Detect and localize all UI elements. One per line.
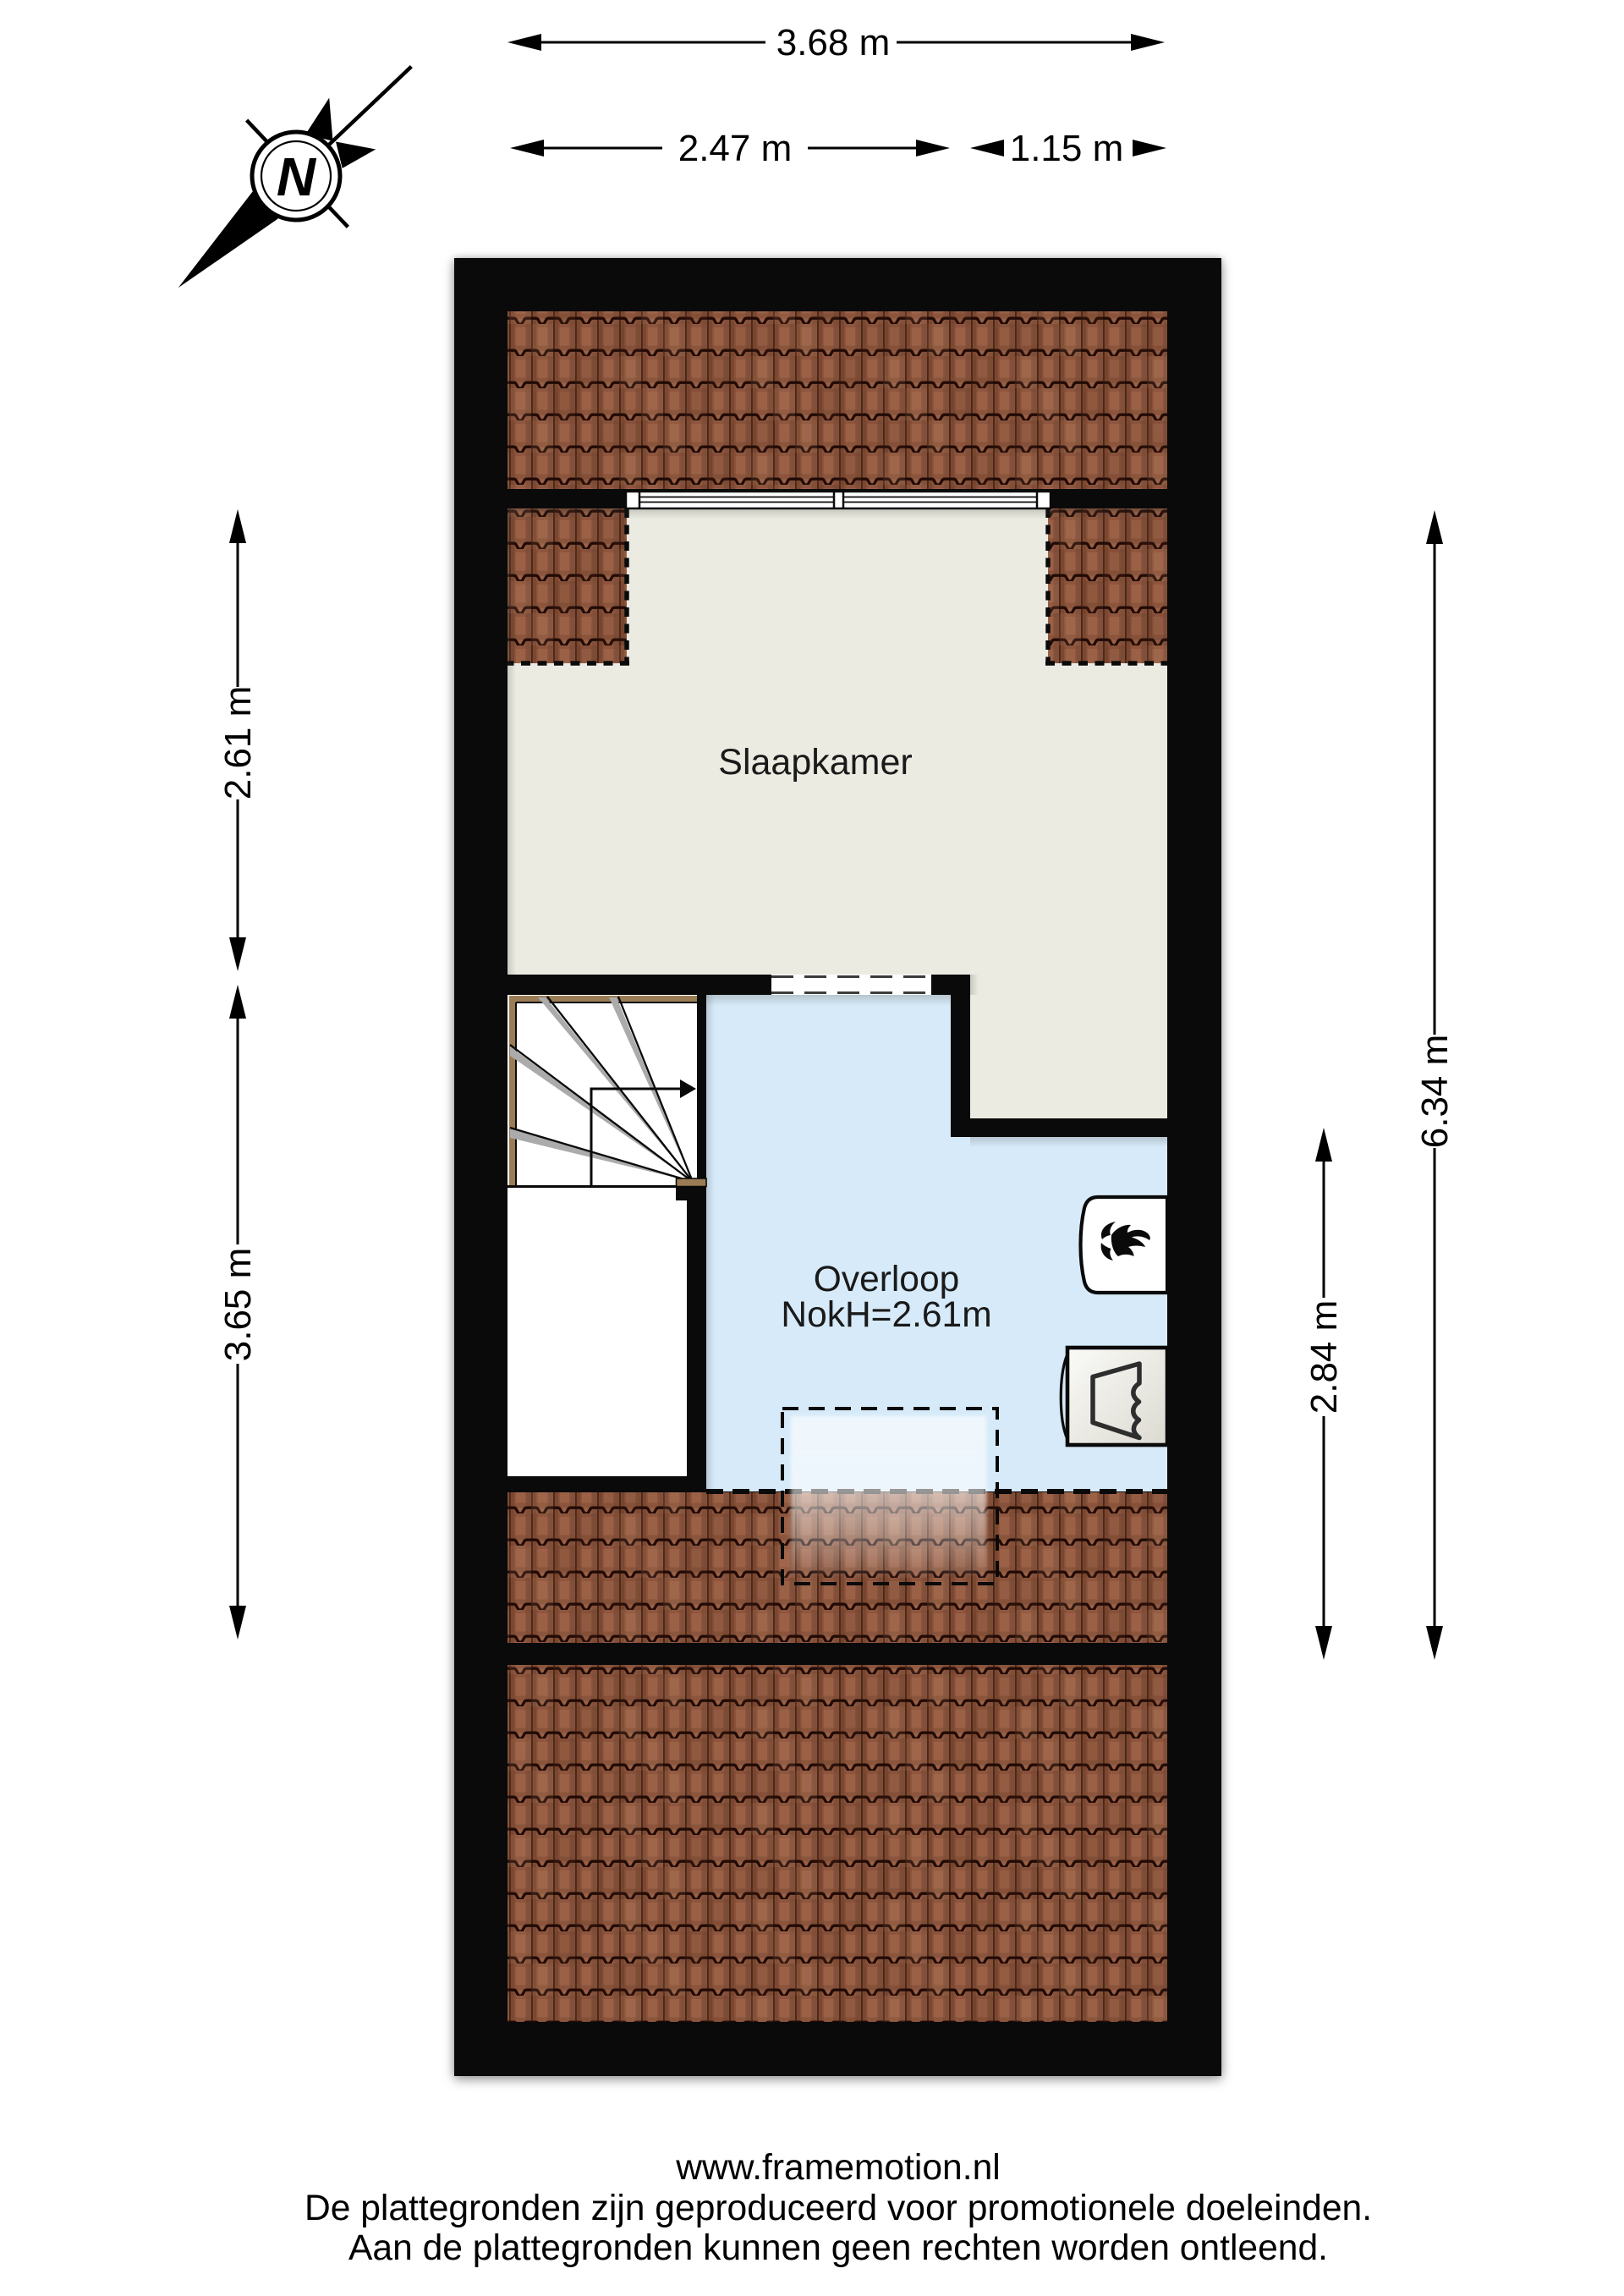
svg-text:2.47 m: 2.47 m bbox=[678, 128, 793, 169]
svg-text:Slaapkamer: Slaapkamer bbox=[718, 742, 912, 783]
svg-text:3.65 m: 3.65 m bbox=[217, 1248, 259, 1362]
svg-text:2.84 m: 2.84 m bbox=[1303, 1300, 1345, 1414]
svg-text:3.68 m: 3.68 m bbox=[776, 22, 891, 63]
svg-text:Aan de plattegronden kunnen ge: Aan de plattegronden kunnen geen rechten… bbox=[348, 2227, 1328, 2268]
svg-text:2.61 m: 2.61 m bbox=[217, 686, 259, 800]
svg-text:6.34 m: 6.34 m bbox=[1414, 1035, 1456, 1149]
svg-text:N: N bbox=[277, 146, 317, 207]
svg-text:1.15 m: 1.15 m bbox=[1010, 128, 1124, 169]
svg-text:NokH=2.61m: NokH=2.61m bbox=[781, 1295, 991, 1335]
svg-text:www.framemotion.nl: www.framemotion.nl bbox=[675, 2147, 1000, 2188]
svg-text:Overloop: Overloop bbox=[814, 1260, 959, 1299]
svg-text:De plattegronden zijn geproduc: De plattegronden zijn geproduceerd voor … bbox=[304, 2188, 1372, 2228]
